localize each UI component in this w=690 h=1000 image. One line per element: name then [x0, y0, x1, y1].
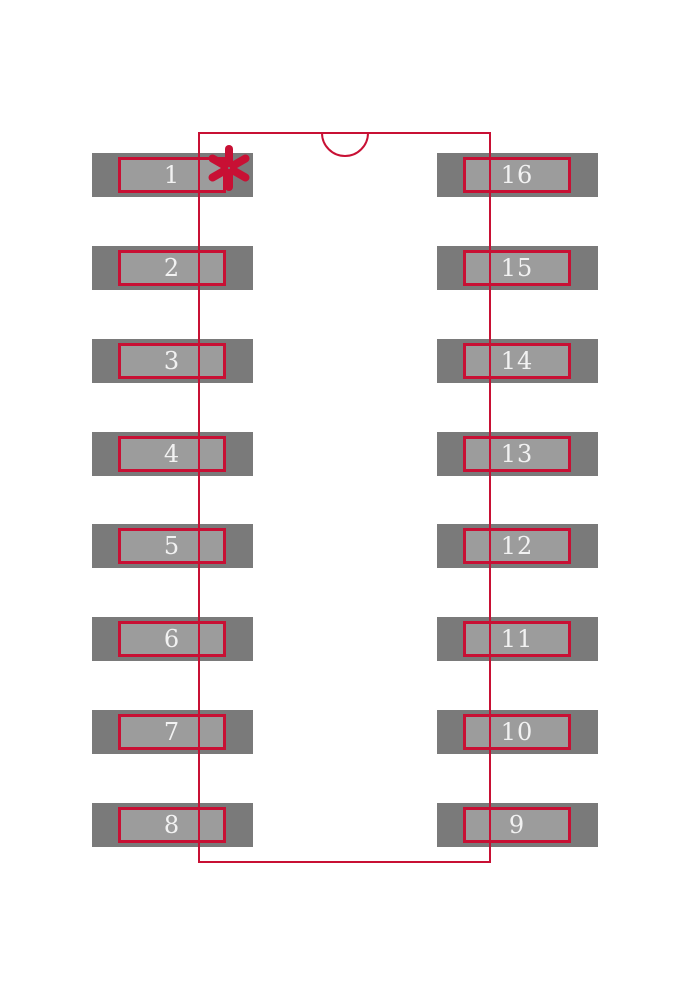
pad-mask-opening: 8: [118, 807, 226, 843]
pads-layer: 1 2 3 4 5 6 7 8: [0, 0, 690, 1000]
pad-right-13: 13: [437, 432, 598, 476]
pad-number: 12: [501, 534, 534, 558]
pad-number: 11: [501, 627, 534, 651]
pad-number: 13: [501, 442, 534, 466]
pad-mask-opening: 13: [463, 436, 571, 472]
pad-number: 16: [501, 163, 534, 187]
pad-left-4: 4: [92, 432, 253, 476]
pad-right-15: 15: [437, 246, 598, 290]
pad-number: 1: [164, 163, 180, 187]
pad-number: 14: [501, 349, 534, 373]
pad-mask-opening: 9: [463, 807, 571, 843]
pad-left-7: 7: [92, 710, 253, 754]
pad-number: 8: [164, 813, 180, 837]
pad-number: 9: [509, 813, 525, 837]
pad-number: 3: [164, 349, 180, 373]
pad-right-16: 16: [437, 153, 598, 197]
pad-mask-opening: 5: [118, 528, 226, 564]
pad-right-12: 12: [437, 524, 598, 568]
pad-number: 15: [501, 256, 534, 280]
pad-number: 2: [164, 256, 180, 280]
pad-right-10: 10: [437, 710, 598, 754]
pad-mask-opening: 3: [118, 343, 226, 379]
pad-mask-opening: 12: [463, 528, 571, 564]
pad-mask-opening: 2: [118, 250, 226, 286]
pad-left-5: 5: [92, 524, 253, 568]
pad-left-8: 8: [92, 803, 253, 847]
pad-mask-opening: 10: [463, 714, 571, 750]
pad-left-2: 2: [92, 246, 253, 290]
pad-right-14: 14: [437, 339, 598, 383]
pad-mask-opening: 1: [118, 157, 226, 193]
pad-number: 5: [164, 534, 180, 558]
pad-mask-opening: 14: [463, 343, 571, 379]
pad-number: 6: [164, 627, 180, 651]
pad-left-1: 1: [92, 153, 253, 197]
pad-right-9: 9: [437, 803, 598, 847]
pad-mask-opening: 11: [463, 621, 571, 657]
pad-left-6: 6: [92, 617, 253, 661]
footprint-canvas: 1 2 3 4 5 6 7 8: [0, 0, 690, 1000]
pad-number: 10: [501, 720, 534, 744]
pad-number: 4: [164, 442, 180, 466]
pad-mask-opening: 15: [463, 250, 571, 286]
pad-mask-opening: 4: [118, 436, 226, 472]
pad-left-3: 3: [92, 339, 253, 383]
pad-mask-opening: 7: [118, 714, 226, 750]
pad-mask-opening: 6: [118, 621, 226, 657]
pad-right-11: 11: [437, 617, 598, 661]
pad-number: 7: [164, 720, 180, 744]
pad-mask-opening: 16: [463, 157, 571, 193]
